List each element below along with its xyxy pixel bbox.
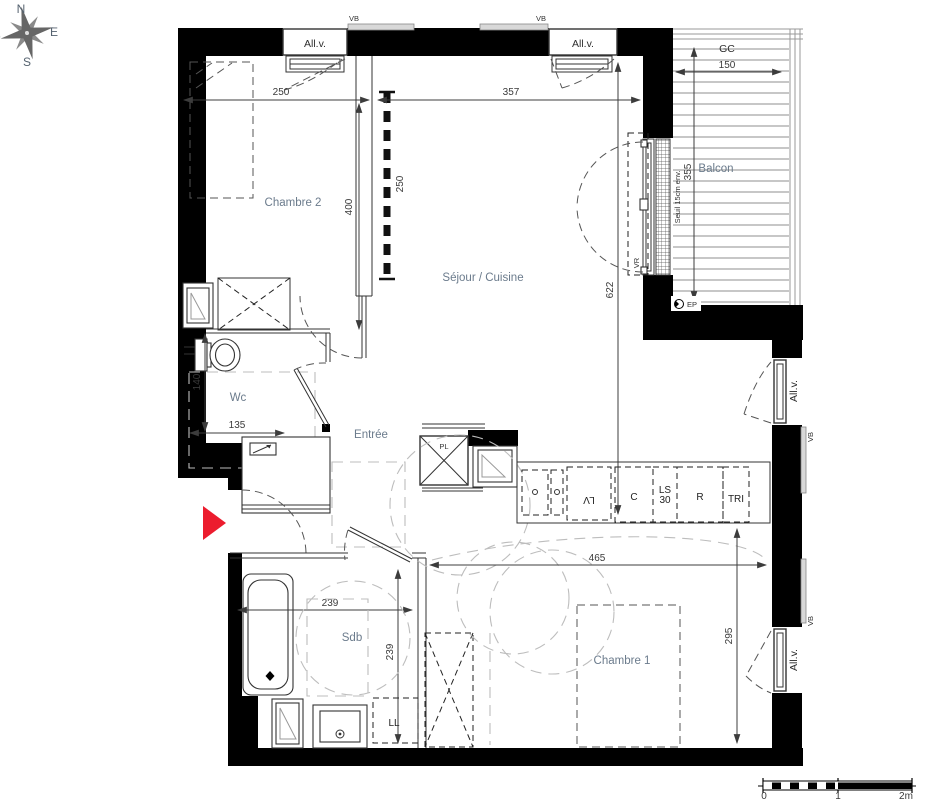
dim-chambre2-width: 250 xyxy=(273,87,290,98)
tri-label: TRI xyxy=(728,494,744,505)
window3-swing xyxy=(744,362,771,423)
shutter-box-top-left xyxy=(348,24,414,30)
dim-sdb-width: 239 xyxy=(322,598,339,609)
vb-label-right-1: VB xyxy=(806,432,815,442)
compass-rose: N E S O xyxy=(0,0,61,69)
wardrobe-chambre1 xyxy=(425,633,473,747)
room-label-chambre1: Chambre 1 xyxy=(594,655,651,667)
vb-label-top-left: VB xyxy=(349,14,359,23)
room-label-wc: Wc xyxy=(230,392,247,404)
window3-allv-label: All.v. xyxy=(788,380,800,402)
dim-cloison: 250 xyxy=(395,175,406,192)
balcony-seuil-label: Seuil 15cm env. xyxy=(673,171,682,224)
vb-label-top-right: VB xyxy=(536,14,546,23)
dim-sejour-width: 357 xyxy=(503,87,520,98)
window4-swing xyxy=(746,631,771,693)
room-label-sdb: Sdb xyxy=(342,632,362,644)
balcony: GC 150 355 Seuil 15cm env. Balcon EP xyxy=(671,29,803,311)
dim-sejour-height: 622 xyxy=(605,281,616,298)
kitchen-sink-bowl2 xyxy=(551,470,563,515)
bay-window: VR xyxy=(577,133,670,275)
scale-0: 0 xyxy=(761,791,767,800)
door-sdb xyxy=(344,527,412,562)
window2-swing xyxy=(551,59,614,88)
room-label-chambre2: Chambre 2 xyxy=(265,197,322,209)
r-label: R xyxy=(696,492,703,503)
shutter-box-top-right xyxy=(480,24,548,30)
dim-wc-width: 135 xyxy=(229,420,246,431)
sdb-cabinet xyxy=(272,699,303,748)
window2-allv-label: All.v. xyxy=(572,38,594,50)
door-wc xyxy=(294,363,329,427)
shutter-box-right-2 xyxy=(801,559,806,623)
technical-cabinet xyxy=(242,437,330,513)
chambre2: Chambre 2 250 400 250 xyxy=(184,62,406,358)
bay-window-glazing xyxy=(656,139,670,275)
scale-bar: 0 1 2m xyxy=(758,778,916,800)
c-label: C xyxy=(630,492,637,503)
entrance-arrow xyxy=(203,506,226,540)
compass-east: E xyxy=(50,25,58,39)
dim-chambre2-height: 400 xyxy=(344,198,355,215)
wc-closet-cross xyxy=(218,278,290,330)
window1-allv-label: All.v. xyxy=(304,38,326,50)
balcony-gc-label: GC xyxy=(719,43,735,55)
balcony-door-swing xyxy=(577,142,643,272)
window4-allv-label: All.v. xyxy=(788,649,800,671)
washing-machine: LL xyxy=(373,698,418,743)
bathtub xyxy=(243,574,293,695)
dim-chambre1-height: 295 xyxy=(724,627,735,644)
dim-sdb-height: 239 xyxy=(385,643,396,660)
dim-balcony-height: 355 xyxy=(683,163,694,180)
compass-north: N xyxy=(17,2,26,16)
kitchen-sink-bowl1 xyxy=(522,470,548,515)
chambre1: Chambre 1 465 295 xyxy=(425,529,766,747)
ls30-label: 30 xyxy=(659,495,671,506)
compass-west: O xyxy=(0,30,1,44)
door-chambre2 xyxy=(300,296,366,358)
appliance-lv: LV xyxy=(567,467,611,520)
bed-chambre1 xyxy=(577,605,680,747)
kitchen: LV C LS 30 R TRI xyxy=(517,462,770,523)
scale-1: 1 xyxy=(835,791,841,800)
vr-label: VR xyxy=(632,257,641,268)
dim-balcony-depth: 150 xyxy=(719,60,736,71)
dim-wc-height: 140 xyxy=(192,373,203,390)
dim-chambre1-width: 465 xyxy=(589,553,606,564)
room-label-balcon: Balcon xyxy=(698,163,733,175)
floor-plan: N E S O GC 150 355 Seuil 15cm env. Balco… xyxy=(0,0,927,800)
washbasin-sdb xyxy=(313,705,367,748)
lv-label: LV xyxy=(583,494,595,505)
entree-clearance xyxy=(332,462,405,547)
room-label-sejour: Séjour / Cuisine xyxy=(442,272,523,284)
ep-label: EP xyxy=(687,300,697,309)
washbasin-wc xyxy=(183,283,213,328)
compass-south: S xyxy=(23,55,31,69)
sdb: Sdb 239 239 LL xyxy=(238,527,418,748)
pl-label: PL xyxy=(439,442,448,451)
chambre1-turning-circle-1 xyxy=(457,542,569,654)
scale-2m: 2m xyxy=(899,791,913,800)
room-label-entree: Entrée xyxy=(354,429,388,441)
entry-sink xyxy=(473,446,517,487)
vb-label-right-2: VB xyxy=(806,616,815,626)
ll-label: LL xyxy=(388,718,400,729)
